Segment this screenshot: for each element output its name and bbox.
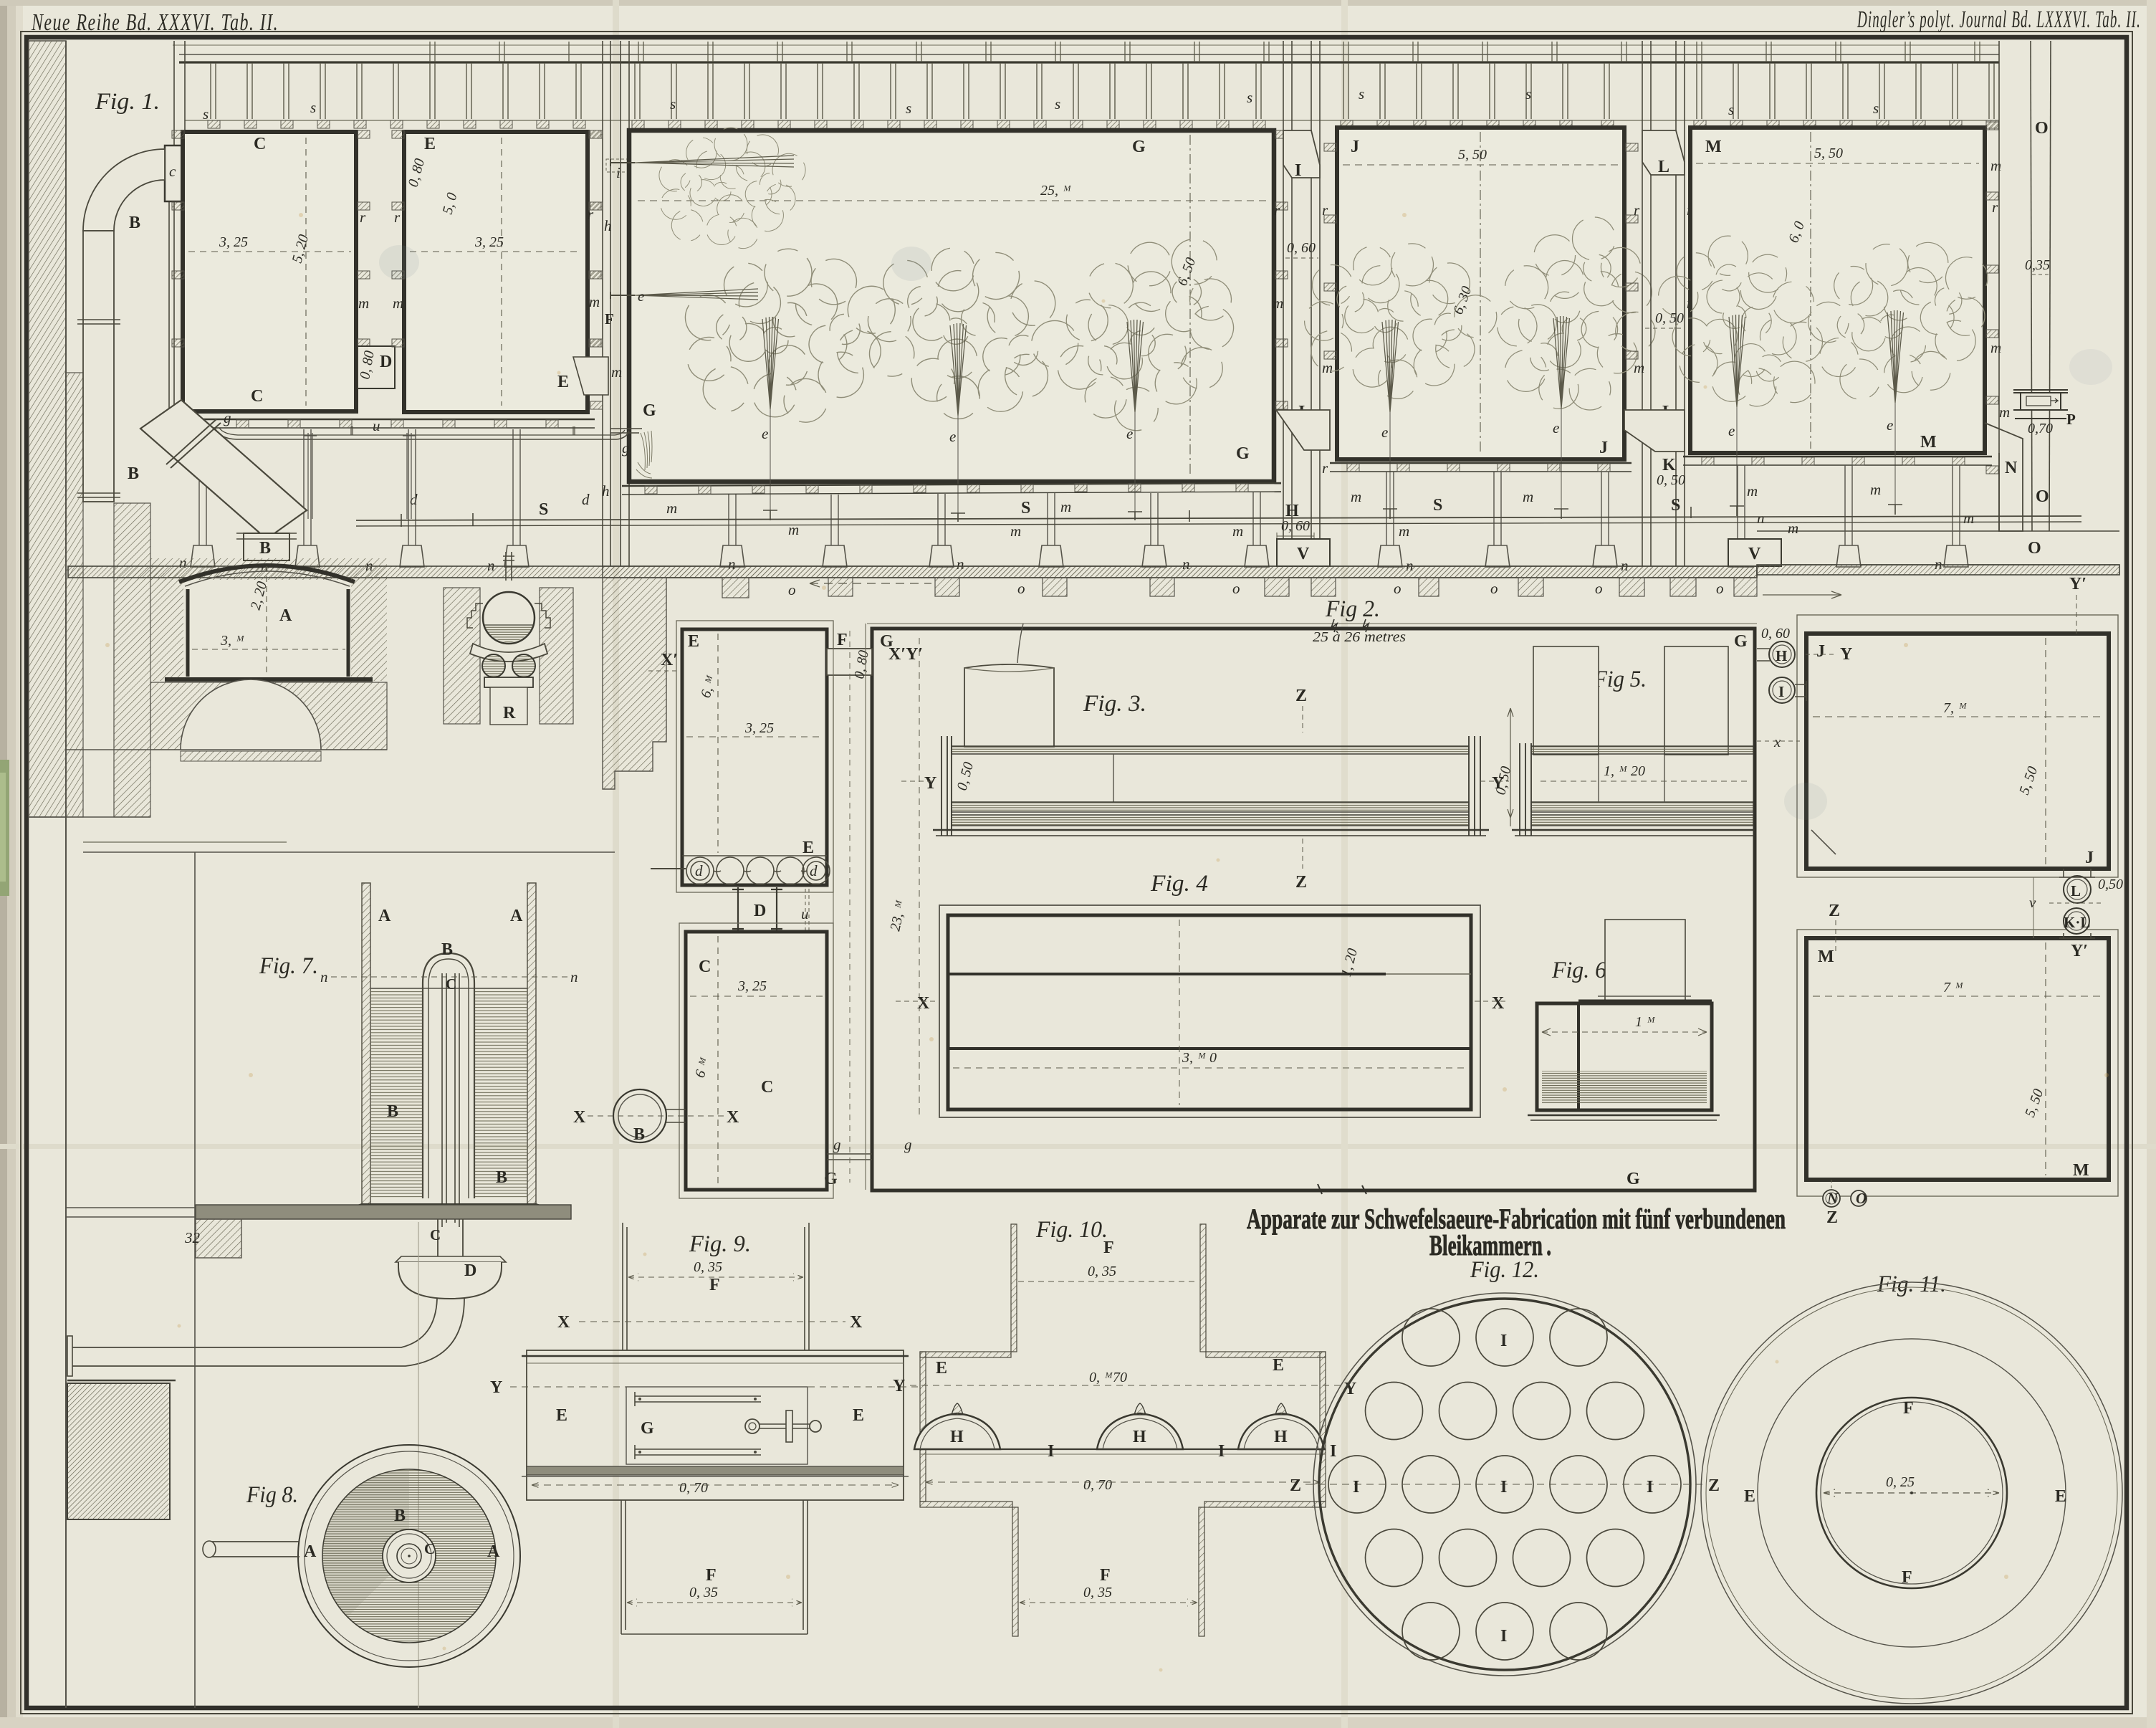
svg-text:X: X bbox=[850, 1313, 863, 1332]
svg-text:7, ᴹ: 7, ᴹ bbox=[1943, 700, 1968, 716]
svg-text:X′Y′: X′Y′ bbox=[888, 645, 923, 664]
svg-text:B: B bbox=[128, 464, 139, 483]
svg-text:g: g bbox=[622, 439, 630, 457]
svg-text:3, 25: 3, 25 bbox=[744, 720, 774, 736]
svg-text:G: G bbox=[1626, 1170, 1640, 1188]
svg-text:e: e bbox=[949, 428, 956, 445]
svg-text:C: C bbox=[761, 1078, 773, 1097]
svg-text:0, 60: 0, 60 bbox=[1281, 518, 1310, 534]
svg-text:0, 70: 0, 70 bbox=[1083, 1477, 1112, 1493]
svg-text:0, ᴹ70: 0, ᴹ70 bbox=[1089, 1370, 1127, 1385]
svg-text:A: A bbox=[304, 1542, 317, 1561]
svg-text:F: F bbox=[1100, 1566, 1111, 1585]
svg-text:u: u bbox=[801, 905, 809, 922]
svg-text:I: I bbox=[1353, 1478, 1359, 1497]
svg-text:m: m bbox=[611, 363, 622, 381]
svg-text:Fig. 1.: Fig. 1. bbox=[95, 89, 160, 115]
svg-text:J: J bbox=[2085, 849, 2094, 867]
svg-text:C: C bbox=[430, 1226, 441, 1244]
svg-text:s: s bbox=[1247, 89, 1252, 106]
svg-text:s: s bbox=[1055, 95, 1060, 113]
svg-text:Fig 8.: Fig 8. bbox=[246, 1482, 298, 1508]
svg-text:X: X bbox=[917, 994, 930, 1013]
svg-text:v: v bbox=[2029, 894, 2036, 911]
svg-text:s: s bbox=[670, 95, 676, 113]
svg-text:g: g bbox=[904, 1136, 912, 1153]
svg-text:A: A bbox=[487, 1542, 500, 1561]
svg-text:Dingler’s polyt. Journal Bd. L: Dingler’s polyt. Journal Bd. LXXXVI. Tab… bbox=[1856, 6, 2141, 33]
svg-text:O: O bbox=[2036, 487, 2049, 506]
svg-text:r: r bbox=[394, 209, 401, 226]
svg-text:3, 25: 3, 25 bbox=[219, 234, 248, 250]
svg-text:0, 35: 0, 35 bbox=[694, 1259, 722, 1275]
svg-text:F: F bbox=[706, 1566, 717, 1585]
svg-text:Fig. 10.: Fig. 10. bbox=[1035, 1217, 1108, 1243]
svg-text:B: B bbox=[633, 1125, 645, 1144]
svg-text:A: A bbox=[510, 907, 523, 925]
svg-text:Y: Y bbox=[893, 1377, 905, 1395]
svg-text:0, 35: 0, 35 bbox=[1088, 1264, 1116, 1279]
svg-text:Y: Y bbox=[1840, 645, 1852, 664]
svg-text:E: E bbox=[2055, 1487, 2066, 1506]
svg-text:Fig 2.: Fig 2. bbox=[1325, 596, 1380, 622]
svg-text:I: I bbox=[1295, 161, 1301, 180]
svg-text:r: r bbox=[1274, 201, 1280, 219]
svg-text:Fig. 12.: Fig. 12. bbox=[1470, 1257, 1539, 1283]
svg-text:I: I bbox=[1218, 1442, 1225, 1461]
svg-text:0, 70: 0, 70 bbox=[679, 1480, 708, 1496]
svg-text:S: S bbox=[1021, 499, 1030, 517]
svg-text:Fig. 11.: Fig. 11. bbox=[1877, 1271, 1946, 1297]
svg-text:S: S bbox=[1671, 496, 1680, 515]
svg-text:Z: Z bbox=[1829, 902, 1840, 920]
svg-text:Fig. 3.: Fig. 3. bbox=[1083, 691, 1146, 717]
svg-text:0, 50: 0, 50 bbox=[1655, 310, 1684, 326]
svg-text:0, 60: 0, 60 bbox=[1287, 240, 1316, 256]
svg-text:E: E bbox=[424, 135, 436, 153]
svg-text:m: m bbox=[358, 295, 369, 312]
svg-text:B: B bbox=[496, 1168, 507, 1187]
svg-text:E: E bbox=[936, 1359, 947, 1378]
svg-text:Y: Y bbox=[490, 1378, 502, 1397]
svg-text:Z: Z bbox=[1290, 1476, 1301, 1495]
svg-text:0, 35: 0, 35 bbox=[689, 1585, 718, 1600]
svg-text:G: G bbox=[643, 401, 656, 420]
svg-text:0, 25: 0, 25 bbox=[1886, 1474, 1915, 1490]
svg-text:d: d bbox=[695, 862, 703, 879]
svg-text:E: E bbox=[1273, 1356, 1284, 1375]
svg-text:e: e bbox=[762, 425, 768, 442]
svg-text:m: m bbox=[393, 295, 403, 312]
svg-text:o: o bbox=[1490, 580, 1498, 597]
svg-text:m: m bbox=[666, 500, 677, 517]
svg-text:J: J bbox=[1351, 138, 1359, 156]
svg-text:X′: X′ bbox=[661, 651, 678, 669]
svg-text:Fig. 7.: Fig. 7. bbox=[259, 953, 318, 979]
svg-text:0,70: 0,70 bbox=[2028, 421, 2053, 436]
svg-text:G: G bbox=[1734, 632, 1748, 651]
svg-text:s: s bbox=[1359, 85, 1364, 102]
svg-text:e: e bbox=[1728, 422, 1735, 439]
svg-text:m: m bbox=[1010, 522, 1021, 540]
svg-text:F: F bbox=[837, 631, 848, 649]
svg-text:J: J bbox=[1816, 642, 1825, 661]
svg-text:Y′: Y′ bbox=[2071, 942, 2088, 960]
svg-text:I: I bbox=[1500, 1332, 1507, 1350]
svg-text:o: o bbox=[1017, 580, 1025, 597]
svg-text:m: m bbox=[1273, 295, 1283, 312]
svg-text:S: S bbox=[1433, 496, 1442, 515]
svg-text:3, ᴹ 0: 3, ᴹ 0 bbox=[1182, 1050, 1217, 1066]
svg-text:Z: Z bbox=[1708, 1476, 1720, 1495]
svg-text:m: m bbox=[589, 293, 600, 310]
svg-text:d: d bbox=[582, 491, 590, 508]
svg-text:o: o bbox=[1716, 580, 1724, 597]
svg-text:L: L bbox=[1658, 158, 1669, 176]
svg-text:0, 35: 0, 35 bbox=[1083, 1585, 1112, 1600]
svg-text:I: I bbox=[1330, 1442, 1336, 1461]
svg-text:K·L: K·L bbox=[2064, 914, 2090, 931]
svg-text:h: h bbox=[604, 217, 612, 234]
svg-text:A: A bbox=[378, 907, 391, 925]
svg-text:c: c bbox=[169, 163, 176, 180]
svg-text:o: o bbox=[1595, 580, 1603, 597]
svg-text:Y: Y bbox=[924, 774, 936, 793]
svg-text:F: F bbox=[1902, 1568, 1912, 1587]
svg-text:Z: Z bbox=[1826, 1208, 1838, 1227]
svg-text:5, 50: 5, 50 bbox=[1458, 147, 1487, 163]
svg-text:m: m bbox=[1322, 359, 1333, 376]
svg-text:3, 25: 3, 25 bbox=[737, 978, 767, 994]
svg-text:m: m bbox=[1523, 488, 1533, 505]
svg-text:r: r bbox=[1992, 199, 1998, 216]
svg-text:n: n bbox=[320, 968, 328, 985]
svg-text:E: E bbox=[802, 839, 814, 857]
svg-text:G: G bbox=[1236, 444, 1250, 463]
svg-text:J: J bbox=[1599, 439, 1608, 457]
svg-text:m: m bbox=[788, 521, 799, 538]
svg-text:M: M bbox=[1818, 947, 1834, 966]
svg-text:D: D bbox=[380, 353, 392, 371]
svg-text:r: r bbox=[1322, 459, 1328, 477]
svg-text:m: m bbox=[1232, 522, 1243, 540]
svg-text:s: s bbox=[1873, 100, 1879, 117]
svg-text:C: C bbox=[251, 387, 263, 406]
svg-text:0,35: 0,35 bbox=[2025, 257, 2050, 273]
svg-text:r: r bbox=[1634, 201, 1640, 219]
svg-text:e: e bbox=[1887, 416, 1893, 434]
svg-text:B: B bbox=[259, 539, 271, 558]
svg-text:x: x bbox=[1773, 733, 1781, 750]
svg-text:M: M bbox=[2073, 1161, 2089, 1180]
svg-text:N: N bbox=[2005, 459, 2018, 477]
svg-text:D: D bbox=[754, 902, 766, 920]
svg-text:s: s bbox=[1728, 101, 1734, 118]
svg-text:g: g bbox=[833, 1136, 841, 1153]
svg-text:C: C bbox=[699, 958, 711, 976]
svg-text:P: P bbox=[2066, 411, 2076, 428]
svg-text:e: e bbox=[1381, 424, 1388, 441]
svg-text:32: 32 bbox=[184, 1229, 201, 1246]
svg-text:5, 50: 5, 50 bbox=[1814, 145, 1843, 161]
svg-text:M: M bbox=[1920, 433, 1937, 452]
svg-text:X: X bbox=[1492, 994, 1505, 1013]
svg-text:X: X bbox=[557, 1313, 570, 1332]
svg-text:s: s bbox=[906, 100, 911, 117]
svg-text:E: E bbox=[688, 632, 699, 651]
svg-text:O: O bbox=[2028, 539, 2041, 558]
svg-text:m: m bbox=[1990, 339, 2001, 356]
svg-text:s: s bbox=[1525, 85, 1531, 102]
svg-text:E: E bbox=[1744, 1487, 1755, 1506]
svg-text:H: H bbox=[1776, 647, 1787, 664]
svg-text:B: B bbox=[441, 940, 453, 959]
svg-text:I: I bbox=[1778, 683, 1784, 700]
svg-text:Fig 5.: Fig 5. bbox=[1593, 667, 1647, 692]
svg-text:7 ᴹ: 7 ᴹ bbox=[1943, 980, 1964, 996]
svg-text:m: m bbox=[1999, 404, 2010, 421]
svg-text:X: X bbox=[573, 1108, 586, 1127]
svg-text:F: F bbox=[709, 1276, 720, 1294]
svg-text:s: s bbox=[310, 99, 316, 116]
svg-text:g: g bbox=[224, 409, 231, 426]
svg-text:Fig. 9.: Fig. 9. bbox=[689, 1231, 751, 1257]
svg-text:L: L bbox=[2071, 882, 2081, 899]
svg-text:0, 60: 0, 60 bbox=[1761, 626, 1790, 641]
svg-text:V: V bbox=[1297, 545, 1310, 563]
svg-text:N: N bbox=[1826, 1190, 1839, 1207]
svg-text:H: H bbox=[950, 1428, 964, 1446]
svg-text:n: n bbox=[1757, 510, 1765, 527]
svg-text:o: o bbox=[1232, 580, 1240, 597]
svg-text:F: F bbox=[1103, 1238, 1114, 1257]
svg-text:H: H bbox=[1133, 1428, 1146, 1446]
svg-text:G: G bbox=[1132, 138, 1146, 156]
svg-text:e: e bbox=[1126, 425, 1133, 442]
svg-text:r: r bbox=[360, 209, 366, 226]
svg-text:F: F bbox=[1903, 1399, 1914, 1418]
svg-text:1, ᴹ 20: 1, ᴹ 20 bbox=[1604, 763, 1645, 779]
svg-text:Fig. 6.: Fig. 6. bbox=[1551, 958, 1612, 983]
svg-text:I: I bbox=[1647, 1478, 1653, 1497]
svg-text:D: D bbox=[464, 1261, 476, 1280]
svg-text:m: m bbox=[1747, 482, 1758, 500]
svg-text:C: C bbox=[446, 975, 456, 993]
svg-text:m: m bbox=[1399, 522, 1409, 540]
svg-text:n: n bbox=[570, 968, 578, 985]
svg-text:S: S bbox=[539, 500, 548, 519]
svg-text:Z: Z bbox=[1295, 687, 1307, 705]
svg-text:C: C bbox=[254, 135, 266, 153]
svg-text:Neue Reihe Bd. XXXVI. Tab. II.: Neue Reihe Bd. XXXVI. Tab. II. bbox=[31, 9, 279, 36]
svg-text:m: m bbox=[1634, 359, 1644, 376]
svg-text:m: m bbox=[1351, 488, 1361, 505]
svg-text:h: h bbox=[602, 482, 610, 500]
svg-text:B: B bbox=[387, 1102, 398, 1121]
svg-text:I: I bbox=[1048, 1442, 1054, 1461]
svg-text:A: A bbox=[279, 606, 292, 625]
svg-text:e: e bbox=[638, 287, 644, 305]
svg-text:3, ᴹ: 3, ᴹ bbox=[220, 633, 245, 649]
svg-text:e: e bbox=[1553, 419, 1559, 436]
svg-text:m: m bbox=[1870, 481, 1881, 498]
svg-text:Y′: Y′ bbox=[2069, 575, 2086, 593]
svg-text:d: d bbox=[810, 862, 818, 879]
svg-text:O: O bbox=[1856, 1190, 1867, 1207]
svg-text:1 ᴹ: 1 ᴹ bbox=[1635, 1014, 1656, 1030]
svg-text:0, 50: 0, 50 bbox=[1657, 472, 1685, 488]
svg-text:X: X bbox=[727, 1108, 739, 1127]
svg-text:F: F bbox=[605, 310, 614, 328]
svg-text:o: o bbox=[1394, 580, 1402, 597]
svg-text:0,50: 0,50 bbox=[2098, 877, 2123, 892]
svg-text:Z: Z bbox=[1295, 873, 1307, 892]
svg-text:G: G bbox=[641, 1419, 654, 1438]
svg-text:V: V bbox=[1748, 545, 1761, 563]
svg-text:m: m bbox=[1990, 157, 2001, 174]
svg-text:O: O bbox=[2035, 119, 2049, 138]
svg-text:E: E bbox=[556, 1406, 567, 1425]
svg-text:I: I bbox=[1500, 1478, 1507, 1497]
svg-text:B: B bbox=[129, 214, 140, 232]
svg-text:M: M bbox=[1705, 138, 1722, 156]
svg-text:25 à 26 metres: 25 à 26 metres bbox=[1313, 629, 1406, 645]
svg-text:Fig. 4: Fig. 4 bbox=[1150, 871, 1208, 897]
svg-text:i: i bbox=[616, 164, 621, 181]
svg-text:E: E bbox=[557, 373, 569, 391]
svg-text:m: m bbox=[1963, 510, 1974, 527]
svg-text:B: B bbox=[394, 1507, 406, 1525]
svg-text:m: m bbox=[1060, 498, 1071, 515]
svg-text:3, 25: 3, 25 bbox=[474, 234, 504, 250]
svg-text:o: o bbox=[788, 581, 796, 598]
svg-text:R: R bbox=[503, 704, 516, 722]
svg-text:s: s bbox=[203, 105, 209, 123]
svg-text:25, ᴹ: 25, ᴹ bbox=[1040, 183, 1072, 199]
svg-text:C: C bbox=[424, 1540, 435, 1557]
svg-text:H: H bbox=[1274, 1428, 1288, 1446]
svg-text:E: E bbox=[853, 1406, 864, 1425]
svg-text:I: I bbox=[1500, 1627, 1507, 1646]
